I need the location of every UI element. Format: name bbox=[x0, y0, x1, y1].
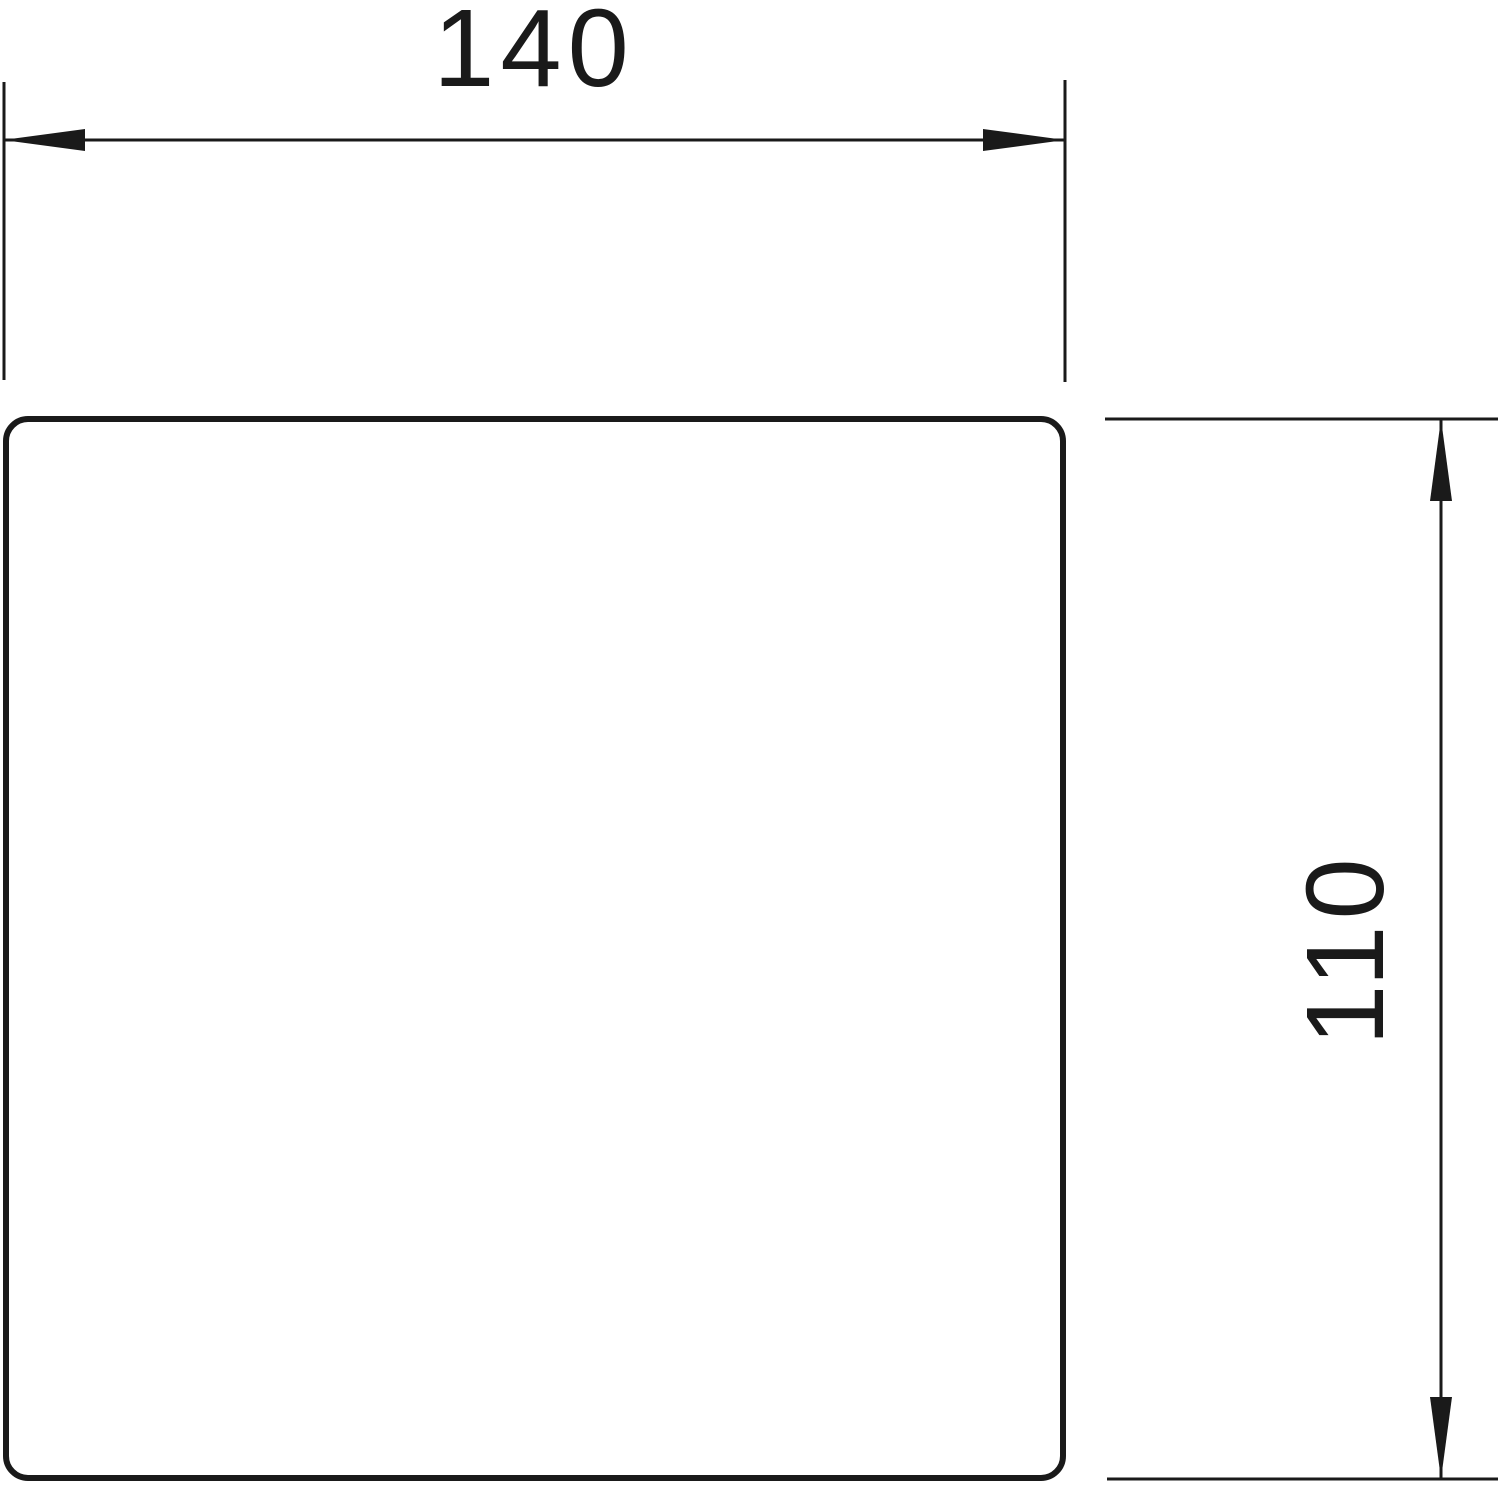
height-dimension-value: 110 bbox=[1284, 852, 1407, 1045]
technical-drawing: 140 110 bbox=[0, 0, 1500, 1486]
height-dimension: 110 bbox=[1105, 419, 1498, 1479]
height-arrowhead-bottom-icon bbox=[1430, 1397, 1452, 1479]
width-dimension: 140 bbox=[3, 0, 1065, 382]
height-arrowhead-top-icon bbox=[1430, 419, 1452, 501]
width-dimension-value: 140 bbox=[433, 0, 635, 110]
drawing-canvas: 140 110 bbox=[0, 0, 1500, 1486]
part-outline-rounded-square bbox=[6, 419, 1063, 1478]
width-arrowhead-right-icon bbox=[983, 129, 1065, 151]
width-arrowhead-left-icon bbox=[3, 129, 85, 151]
